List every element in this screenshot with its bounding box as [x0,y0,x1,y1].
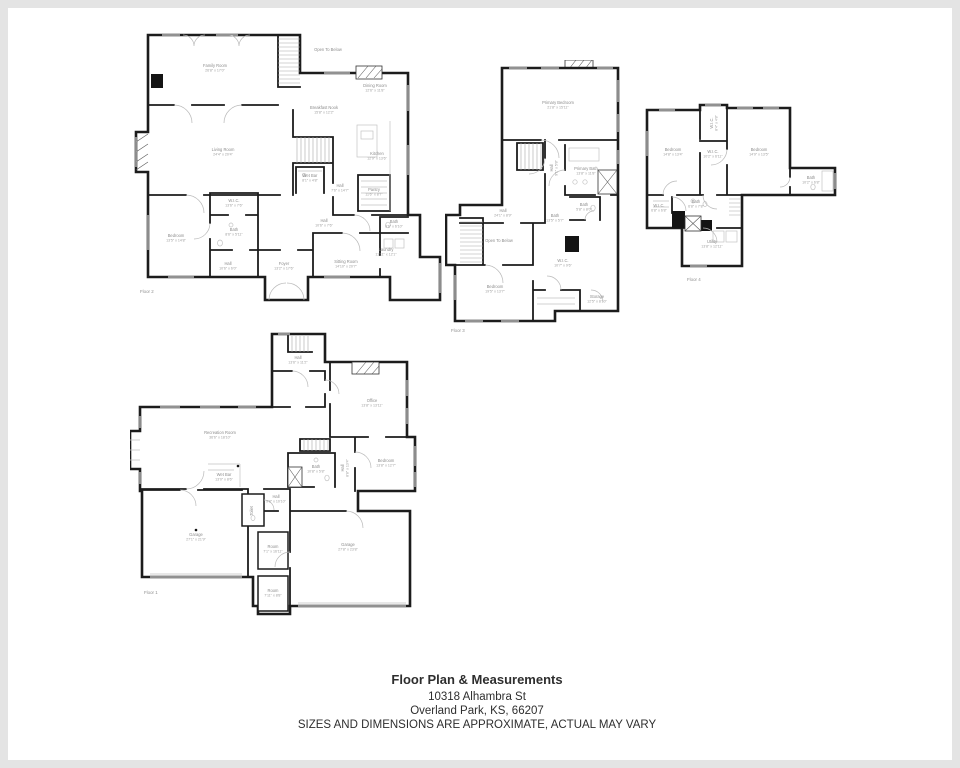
svg-text:Bedroom14'8" x 13'4": Bedroom14'8" x 13'4" [663,147,683,157]
svg-text:Living Room24'4" x 20'4": Living Room24'4" x 20'4" [212,147,235,157]
address-line-2: Overland Park, KS, 66207 [0,704,954,718]
svg-text:Bedroom19'5" x 13'7": Bedroom19'5" x 13'7" [485,284,505,294]
svg-text:Bedroom13'8" x 12'7": Bedroom13'8" x 12'7" [376,458,396,468]
svg-text:Sitting Room14'10" x 20'7": Sitting Room14'10" x 20'7" [334,259,358,269]
walls [647,105,835,266]
svg-text:Toilet: Toilet [249,505,254,515]
svg-text:Family Room26'8" x 17'0": Family Room26'8" x 17'0" [203,63,228,73]
svg-text:Floor 2: Floor 2 [140,289,154,294]
svg-text:Bedroom14'9" x 13'5": Bedroom14'9" x 13'5" [749,147,769,157]
address-line-1: 10318 Alhambra St [0,690,954,704]
disclaimer: SIZES AND DIMENSIONS ARE APPROXIMATE, AC… [0,718,954,732]
svg-text:Wet Bar8'1" x 4'8": Wet Bar8'1" x 4'8" [302,173,318,183]
svg-text:Floor 4: Floor 4 [687,277,701,282]
floor-plan-floor-2: Family Room26'8" x 17'0"Open To BelowDin… [128,25,443,315]
floor-plan-floor-1: Hall13'6" x 11'2"Office13'8" x 13'11"Rec… [130,332,422,622]
svg-text:Open To Below: Open To Below [314,47,342,52]
floor-plan-floor-3: Primary Bedroom21'8" x 15'11"Hall9'1" x … [445,60,645,340]
svg-text:Wet Bar13'0" x 8'6": Wet Bar13'0" x 8'6" [215,472,233,482]
plan-title: Floor Plan & Measurements [0,672,954,687]
walls [446,60,618,321]
svg-text:Bedroom13'5" x 14'8": Bedroom13'5" x 14'8" [166,233,186,243]
svg-text:Floor 3: Floor 3 [451,328,465,333]
floor-plan-floor-4: Bedroom14'8" x 13'4"W.I.C.8'4" x 4'8"W.I… [645,101,840,286]
footer: Floor Plan & Measurements 10318 Alhambra… [0,672,954,732]
svg-text:Primary Bath13'8" x 11'8": Primary Bath13'8" x 11'8" [574,166,598,176]
walls [130,334,415,614]
svg-text:Open To Below: Open To Below [485,238,513,243]
svg-text:Dining Room12'6" x 11'8": Dining Room12'6" x 11'8" [363,83,387,93]
svg-text:Floor 1: Floor 1 [144,590,158,595]
